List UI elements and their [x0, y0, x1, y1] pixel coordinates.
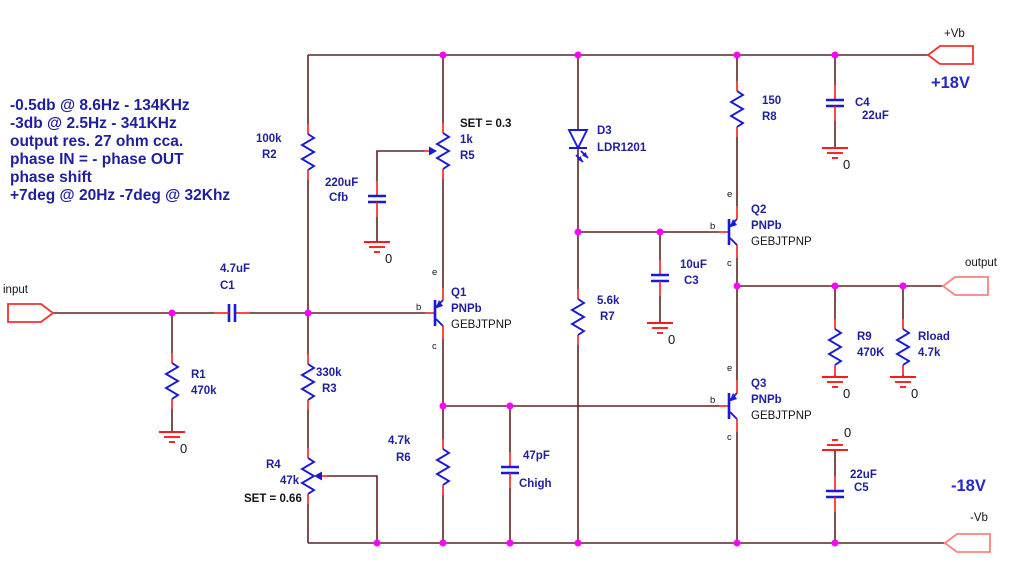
- junction-dot: [832, 540, 839, 547]
- pnp-transistor-symbol: [425, 287, 443, 339]
- annotation-line-2: -3db @ 2.5Hz - 341KHz: [10, 115, 177, 132]
- junction-dot: [440, 403, 447, 410]
- r2-value-label: 100k: [256, 133, 282, 145]
- junction-dot: [507, 403, 514, 410]
- output-port-icon: [943, 277, 988, 295]
- r4-value-label: 47k: [280, 475, 300, 487]
- ground-c3[interactable]: 0: [647, 323, 675, 347]
- r1-value-label: 470k: [191, 385, 217, 397]
- resistor-r9[interactable]: R9 470K: [829, 319, 885, 375]
- resistor-symbol: [731, 81, 743, 137]
- r6-value-label: 4.7k: [388, 435, 411, 447]
- junction-dot: [374, 540, 381, 547]
- vb-positive-label: +Vb: [944, 28, 965, 40]
- junction-dot: [440, 52, 447, 59]
- r4-ref-label: R4: [266, 459, 281, 471]
- resistor-symbol: [437, 123, 449, 179]
- capacitor-chigh[interactable]: 47pF Chigh: [501, 450, 552, 490]
- chigh-ref-label: Chigh: [519, 478, 552, 490]
- resistor-r6[interactable]: 4.7k R6: [388, 435, 449, 495]
- port-vb-positive[interactable]: +Vb +18V: [928, 28, 973, 92]
- r5-value-label: 1k: [460, 134, 473, 146]
- ground-0-label: 0: [668, 332, 675, 347]
- r5-set-label: SET = 0.3: [460, 118, 511, 130]
- led-symbol: [569, 130, 588, 162]
- capacitor-symbol: [368, 181, 386, 217]
- r7-ref-label: R7: [600, 311, 615, 323]
- wiper-arrow-icon: [314, 472, 327, 481]
- cfb-ref-label: Cfb: [329, 192, 348, 204]
- c3-value-label: 10uF: [680, 259, 707, 271]
- vb-negative-voltage: -18V: [951, 477, 986, 495]
- annotation-line-5: phase shift: [10, 169, 92, 186]
- wiper-arrow-icon: [424, 147, 437, 156]
- r4-set-label: SET = 0.66: [244, 493, 302, 505]
- q1-ref-label: Q1: [451, 287, 467, 299]
- ground-rload[interactable]: 0: [890, 377, 918, 401]
- resistor-rload[interactable]: Rload 4.7k: [897, 319, 950, 375]
- capacitor-c1[interactable]: 4.7uF C1: [214, 263, 250, 322]
- q1-model-label: GEBJTPNP: [451, 319, 512, 331]
- c1-value-label: 4.7uF: [220, 263, 250, 275]
- junction-dot: [169, 310, 176, 317]
- junction-dot: [575, 52, 582, 59]
- output-port-label: output: [965, 257, 998, 269]
- q1-pin-c-label: c: [432, 341, 437, 352]
- resistor-r8[interactable]: 150 R8: [731, 81, 781, 137]
- capacitor-c3[interactable]: 10uF C3: [651, 259, 707, 296]
- r5-ref-label: R5: [460, 150, 475, 162]
- capacitor-symbol: [826, 476, 844, 512]
- ground-0-label: 0: [180, 441, 187, 456]
- ground-0-label: 0: [843, 157, 850, 172]
- resistor-r3[interactable]: 330k R3: [302, 354, 342, 410]
- q3-model-label: GEBJTPNP: [751, 410, 812, 422]
- q2-model-label: GEBJTPNP: [751, 236, 812, 248]
- ground-0-label: 0: [385, 251, 392, 266]
- resistor-r1[interactable]: R1 470k: [166, 353, 217, 409]
- r9-value-label: 470K: [857, 347, 885, 359]
- q2-pin-e-label: e: [727, 189, 732, 200]
- annotation-line-4: phase IN = - phase OUT: [10, 151, 184, 168]
- junction-dot: [734, 540, 741, 547]
- annotation-line-3: output res. 27 ohm cca.: [10, 133, 183, 150]
- junction-dot: [440, 540, 447, 547]
- rload-value-label: 4.7k: [918, 347, 941, 359]
- pnp-transistor-symbol: [719, 206, 737, 258]
- input-port-icon: [8, 304, 53, 322]
- ground-r9[interactable]: 0: [822, 377, 850, 401]
- junction-dot: [734, 52, 741, 59]
- annotation-block: -0.5db @ 8.6Hz - 134KHz -3db @ 2.5Hz - 3…: [10, 97, 230, 204]
- junction-dot: [305, 310, 312, 317]
- r2-ref-label: R2: [262, 149, 277, 161]
- ground-c5-inverted[interactable]: 0: [822, 425, 851, 450]
- led-d3[interactable]: D3 LDR1201: [569, 125, 647, 162]
- q2-value-label: PNPb: [751, 220, 782, 232]
- junction-dot: [832, 52, 839, 59]
- c3-ref-label: C3: [684, 275, 699, 287]
- r8-value-label: 150: [762, 95, 781, 107]
- ground-0-label: 0: [844, 425, 851, 440]
- q1-pin-e-label: e: [432, 267, 437, 278]
- resistor-symbol: [437, 439, 449, 495]
- junction-dot: [900, 283, 907, 290]
- c5-value-label: 22uF: [850, 469, 877, 481]
- q3-ref-label: Q3: [751, 378, 766, 390]
- rload-ref-label: Rload: [918, 331, 950, 343]
- port-input[interactable]: input: [3, 284, 53, 322]
- q2-ref-label: Q2: [751, 204, 766, 216]
- d3-ref-label: D3: [597, 125, 612, 137]
- resistor-symbol: [166, 353, 178, 409]
- q3-pin-e-label: e: [727, 363, 732, 374]
- junction-dot: [734, 283, 741, 290]
- r3-value-label: 330k: [316, 367, 342, 379]
- ground-0-label: 0: [911, 386, 918, 401]
- annotation-line-6: +7deg @ 20Hz -7deg @ 32Khz: [10, 187, 230, 204]
- junction-dot: [832, 283, 839, 290]
- port-vb-negative[interactable]: -Vb -18V: [945, 477, 990, 552]
- resistor-symbol: [572, 289, 584, 345]
- cfb-value-label: 220uF: [325, 177, 358, 189]
- transistor-q1[interactable]: Q1 PNPb GEBJTPNP e b c: [416, 267, 512, 352]
- resistor-symbol: [302, 354, 314, 410]
- capacitor-symbol: [214, 304, 250, 322]
- schematic-page: 100k R2 330k R3 R4 47k SET = 0.66 SET = …: [0, 0, 1023, 581]
- ground-r1[interactable]: 0: [159, 432, 187, 456]
- ground-c4[interactable]: 0: [822, 148, 850, 172]
- junction-dot: [575, 540, 582, 547]
- potentiometer-r5[interactable]: SET = 0.3 1k R5: [424, 118, 511, 179]
- junction-dot: [657, 229, 664, 236]
- capacitor-symbol: [501, 452, 519, 488]
- r7-value-label: 5.6k: [597, 295, 620, 307]
- potentiometer-r4[interactable]: R4 47k SET = 0.66: [244, 448, 327, 505]
- q2-pin-b-label: b: [710, 221, 715, 232]
- transistor-q3[interactable]: Q3 PNPb GEBJTPNP e b c: [710, 363, 812, 443]
- c4-value-label: 22uF: [862, 110, 889, 122]
- q1-value-label: PNPb: [451, 303, 482, 315]
- resistor-r2[interactable]: 100k R2: [256, 124, 314, 180]
- c5-ref-label: C5: [854, 482, 869, 494]
- q3-value-label: PNPb: [751, 394, 782, 406]
- vb-negative-port-icon: [945, 534, 990, 552]
- q2-pin-c-label: c: [727, 258, 732, 269]
- vb-positive-port-icon: [928, 46, 973, 64]
- q1-pin-b-label: b: [416, 302, 421, 313]
- annotation-line-1: -0.5db @ 8.6Hz - 134KHz: [10, 97, 190, 114]
- pnp-transistor-symbol: [719, 380, 737, 432]
- resistor-symbol: [897, 319, 909, 375]
- capacitor-cfb[interactable]: 220uF Cfb: [325, 177, 386, 217]
- capacitor-symbol: [651, 260, 669, 296]
- capacitor-c5[interactable]: 22uF C5: [826, 469, 877, 512]
- schematic-canvas: 100k R2 330k R3 R4 47k SET = 0.66 SET = …: [0, 0, 1023, 581]
- r3-ref-label: R3: [322, 383, 337, 395]
- junction-dot: [507, 540, 514, 547]
- c1-ref-label: C1: [220, 280, 235, 292]
- junction-dot: [575, 229, 582, 236]
- capacitor-symbol: [826, 85, 844, 121]
- transistor-q2[interactable]: Q2 PNPb GEBJTPNP e b c: [710, 189, 812, 269]
- port-output[interactable]: output: [943, 257, 998, 295]
- resistor-symbol: [302, 448, 314, 504]
- chigh-value-label: 47pF: [523, 450, 550, 462]
- capacitor-c4[interactable]: C4 22uF: [826, 85, 889, 122]
- ground-icon: [822, 440, 848, 450]
- resistor-r7[interactable]: 5.6k R7: [572, 289, 620, 345]
- vb-positive-voltage: +18V: [931, 74, 970, 92]
- vb-negative-label: -Vb: [970, 512, 988, 524]
- r8-ref-label: R8: [762, 111, 777, 123]
- d3-value-label: LDR1201: [597, 142, 647, 154]
- q3-pin-c-label: c: [727, 432, 732, 443]
- resistor-symbol: [829, 319, 841, 375]
- r6-ref-label: R6: [396, 452, 411, 464]
- c4-ref-label: C4: [855, 97, 870, 109]
- wire-r4-wiper: [327, 476, 377, 543]
- ground-cfb[interactable]: 0: [364, 242, 392, 266]
- ground-0-label: 0: [843, 386, 850, 401]
- q3-pin-b-label: b: [710, 395, 715, 406]
- resistor-symbol: [302, 124, 314, 180]
- input-port-label: input: [3, 284, 29, 296]
- r1-ref-label: R1: [191, 369, 206, 381]
- r9-ref-label: R9: [857, 331, 872, 343]
- junction-dots: [169, 52, 907, 547]
